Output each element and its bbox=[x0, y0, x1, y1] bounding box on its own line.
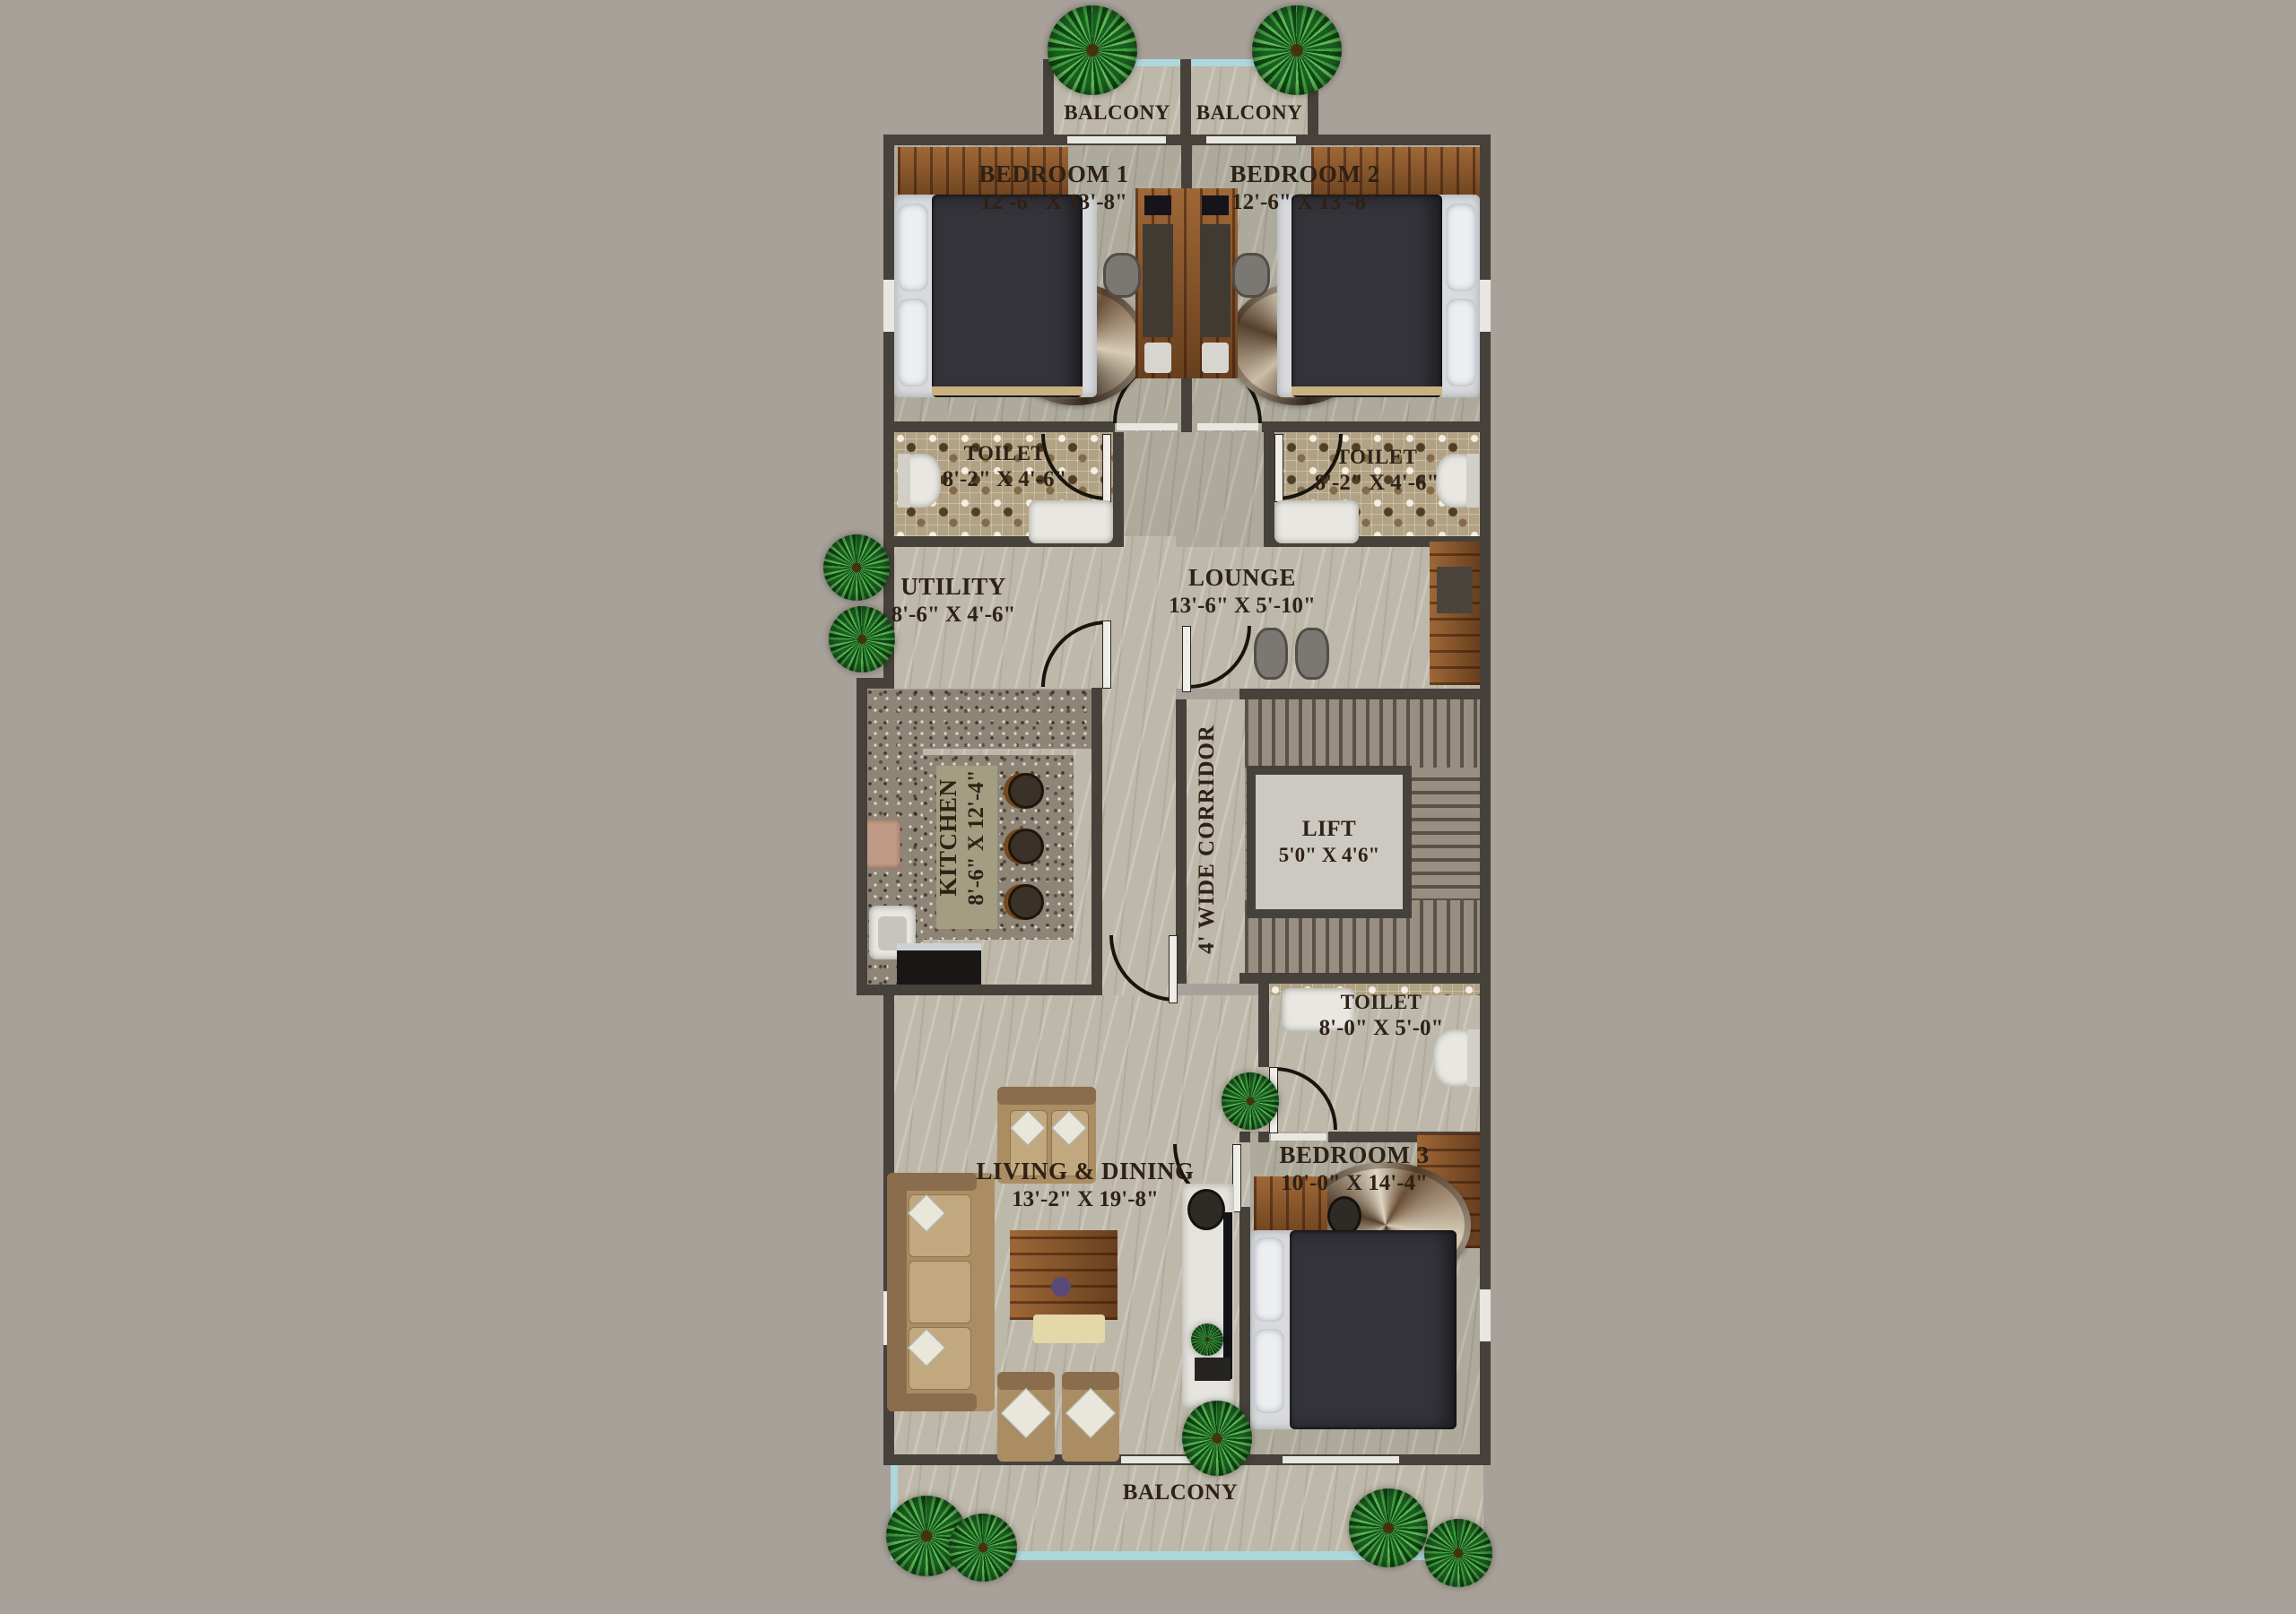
sofa-cushion bbox=[909, 1261, 971, 1323]
lounge-cabinet-inset bbox=[1437, 567, 1473, 613]
balcony-slider-right bbox=[1283, 1456, 1399, 1463]
doorway-bedroom2 bbox=[1197, 423, 1258, 430]
palm-plant bbox=[1222, 1072, 1279, 1130]
living-dining-label: LIVING & DINING 13'-2" X 19'-8" bbox=[973, 1157, 1197, 1213]
kitchen-label: KITCHEN 8'-6" X 12'-4" bbox=[934, 721, 998, 954]
doorway-bedroom1 bbox=[1117, 423, 1178, 430]
lounge-chair bbox=[1254, 628, 1288, 680]
bed3-pillow bbox=[1254, 1237, 1284, 1322]
doorway-toilet3 bbox=[1271, 1133, 1326, 1141]
window-bedroom2 bbox=[1480, 280, 1491, 332]
balcony-top-right-label: BALCONY bbox=[1191, 100, 1308, 126]
desk-chair bbox=[1103, 253, 1141, 298]
palm-plant bbox=[1424, 1519, 1492, 1587]
bedroom1-label: BEDROOM 1 12'-6" X 13'-8" bbox=[933, 160, 1175, 216]
bed1-pillow bbox=[898, 204, 928, 291]
loveseat-back bbox=[997, 1087, 1096, 1105]
wall bbox=[1180, 59, 1191, 145]
toilet2-label: TOILET 8'-2" X 4'-6" bbox=[1265, 445, 1489, 498]
bed2-mattress bbox=[1291, 195, 1442, 397]
window-bedroom3 bbox=[1480, 1289, 1491, 1341]
bed2-pillow bbox=[1446, 299, 1476, 386]
desk-drawer bbox=[1202, 343, 1229, 373]
hall-floor bbox=[1124, 432, 1264, 547]
sofa-arm bbox=[887, 1393, 977, 1411]
wall bbox=[1043, 59, 1054, 145]
bed3-mattress bbox=[1290, 1230, 1457, 1429]
bed2-pillow bbox=[1446, 204, 1476, 291]
potted-plant bbox=[1191, 1323, 1223, 1356]
palm-plant bbox=[1182, 1401, 1252, 1476]
shower-toilet2 bbox=[1274, 500, 1359, 543]
wall bbox=[883, 421, 1115, 432]
door-utility-leaf bbox=[1102, 620, 1111, 689]
sofa-back bbox=[887, 1173, 907, 1411]
palm-plant bbox=[1048, 5, 1137, 95]
bed3-pillow bbox=[1254, 1329, 1284, 1413]
bed1-footboard bbox=[932, 386, 1083, 395]
bar-stool bbox=[1008, 884, 1044, 920]
tv-screen bbox=[1223, 1212, 1232, 1379]
bedroom2-label: BEDROOM 2 12'-6" X 13'-8" bbox=[1184, 160, 1426, 216]
wall-toilet3-left bbox=[1258, 984, 1269, 1067]
kitchen-tray bbox=[863, 820, 900, 868]
stairs-top-flight bbox=[1245, 699, 1480, 768]
lift: LIFT 5'0" X 4'6" bbox=[1247, 766, 1412, 918]
bed2-footboard bbox=[1291, 386, 1442, 395]
dining-table bbox=[1010, 1230, 1118, 1320]
balcony-top-left-label: BALCONY bbox=[1054, 100, 1180, 126]
tv-shelf bbox=[1195, 1358, 1231, 1381]
wall-kitchen-left bbox=[857, 678, 867, 995]
palm-plant bbox=[949, 1514, 1017, 1582]
bed1-pillow bbox=[898, 299, 928, 386]
lounge-label: LOUNGE 13'-6" X 5'-10" bbox=[1130, 563, 1354, 620]
lounge-cabinet bbox=[1430, 542, 1480, 685]
lift-label: LIFT 5'0" X 4'6" bbox=[1279, 816, 1379, 869]
bed1-mattress bbox=[932, 195, 1083, 397]
wall-stairs-bottom bbox=[1239, 973, 1491, 984]
wall-kitchen-right bbox=[1091, 688, 1102, 995]
bar-stool bbox=[1008, 829, 1044, 864]
dining-bench bbox=[1033, 1315, 1105, 1343]
wall-stairs-top bbox=[1239, 689, 1491, 699]
bedroom3-label: BEDROOM 3 10'-0" X 14'-4" bbox=[1242, 1141, 1466, 1197]
toilet3-label: TOILET 8'-0" X 5'-0" bbox=[1269, 990, 1493, 1043]
palm-plant bbox=[1252, 5, 1342, 95]
shower-toilet1 bbox=[1029, 500, 1113, 543]
floor-plan: LIFT 5'0" X 4'6" bbox=[0, 0, 2296, 1614]
desk-drawer bbox=[1144, 343, 1171, 373]
lounge-chair bbox=[1295, 628, 1329, 680]
toilet1-label: TOILET 8'-2" X 4'-6" bbox=[892, 441, 1117, 494]
corridor-label: 4' WIDE CORRIDOR bbox=[1194, 696, 1231, 983]
balcony-bottom-label: BALCONY bbox=[1059, 1479, 1301, 1507]
balcony-slider-left bbox=[1121, 1456, 1193, 1463]
table-centerpiece bbox=[1051, 1277, 1071, 1297]
window-bedroom1 bbox=[883, 280, 894, 332]
balcony-door-right bbox=[1206, 136, 1296, 143]
desk-panel bbox=[1200, 224, 1231, 337]
sofa-arm bbox=[887, 1173, 977, 1191]
palm-plant bbox=[1349, 1488, 1428, 1567]
desk-chair bbox=[1232, 253, 1270, 298]
balcony-door-left bbox=[1067, 136, 1166, 143]
utility-label: UTILITY 8'-6" X 4'-6" bbox=[841, 572, 1065, 629]
door-lounge-leaf bbox=[1182, 626, 1191, 692]
desk-panel bbox=[1143, 224, 1173, 337]
door-corridor-living-leaf bbox=[1169, 935, 1178, 1003]
bar-stool bbox=[1008, 773, 1044, 809]
wall bbox=[1262, 421, 1491, 432]
wall bbox=[1181, 421, 1192, 432]
wall-right bbox=[1480, 134, 1491, 1465]
